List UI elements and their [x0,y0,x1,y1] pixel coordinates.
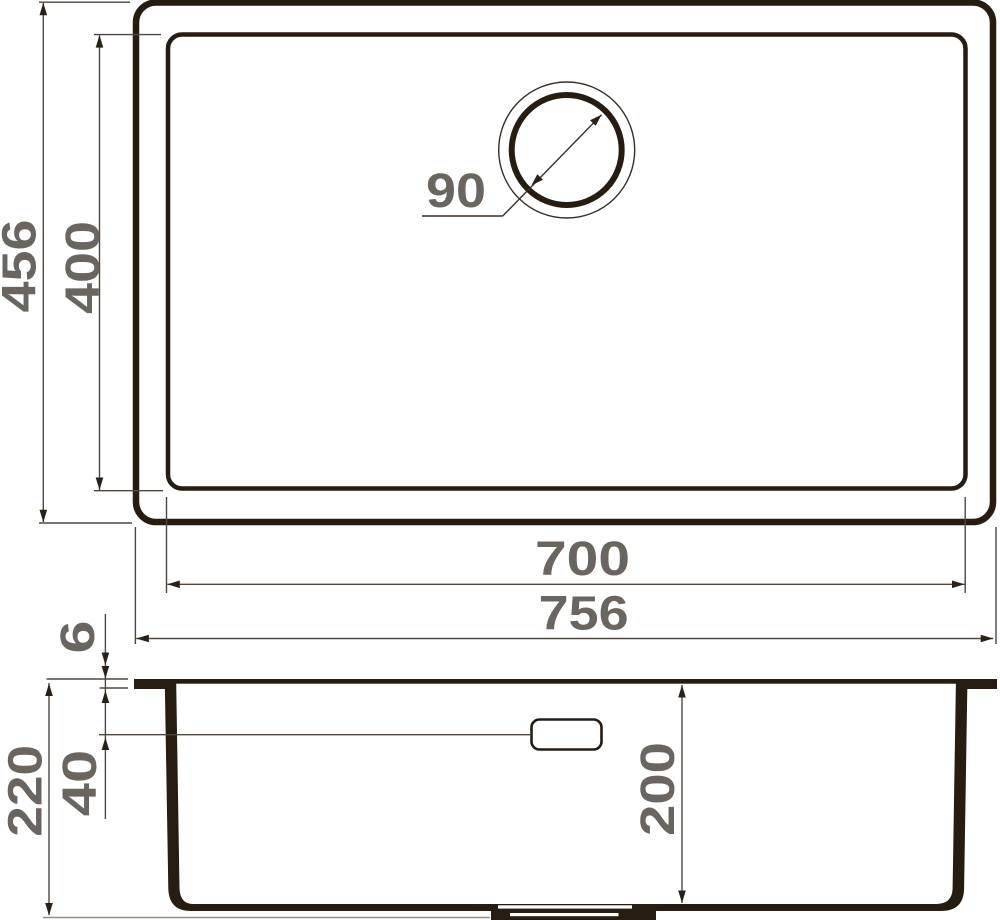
svg-text:456: 456 [0,220,47,313]
svg-text:400: 400 [57,221,110,314]
svg-text:700: 700 [535,533,630,586]
svg-text:756: 756 [539,588,629,641]
svg-text:40: 40 [54,750,107,817]
svg-text:90: 90 [426,165,486,218]
svg-text:200: 200 [632,742,685,836]
svg-text:6: 6 [52,621,105,654]
svg-text:220: 220 [0,745,53,837]
